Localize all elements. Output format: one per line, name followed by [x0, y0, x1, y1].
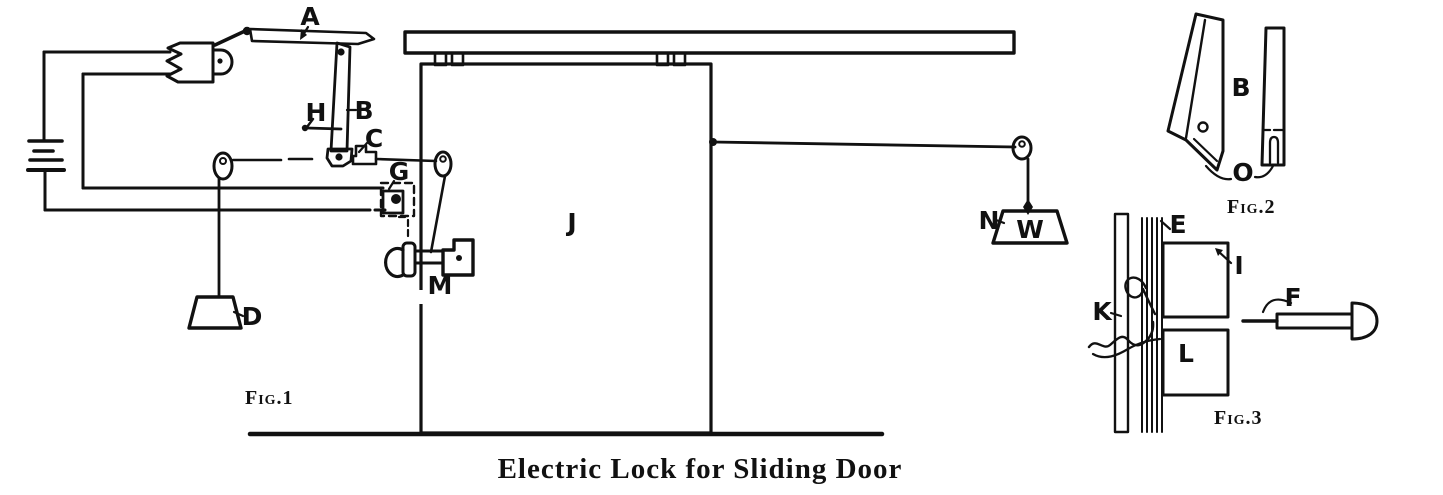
wall-section [1115, 214, 1128, 432]
lever-B [331, 43, 350, 151]
patent-diagram-page: A H B C G J M D N W Fig.1 B O Fig.2 [0, 0, 1443, 495]
battery [28, 52, 64, 210]
lever-top-pivot [337, 48, 344, 55]
bolt-f-shaft [1277, 314, 1352, 328]
fig1-caption: Fig.1 [245, 387, 294, 409]
bolt-block-pin [456, 255, 462, 261]
contact-point [391, 194, 401, 204]
label-F: F [1284, 283, 1301, 312]
pulley-right-axle [1019, 141, 1025, 147]
door-edge-gap [418, 290, 425, 304]
electromagnet [167, 27, 251, 82]
bolt-shaft [415, 251, 443, 263]
label-K: K [1092, 297, 1113, 326]
label-H: H [306, 98, 327, 127]
pulley-left-axle [220, 158, 226, 164]
label-E: E [1169, 210, 1186, 239]
fig1-group: A H B C G J M D N W Fig.1 [28, 2, 1067, 434]
label-G: G [389, 157, 410, 186]
fig3-caption: Fig.3 [1214, 407, 1263, 429]
lever-foot-pivot [335, 153, 342, 160]
wedge-catch-B [1168, 14, 1223, 170]
strike-bar-slot [1270, 137, 1278, 163]
label-B2: B [1231, 73, 1250, 102]
armature-pin [217, 58, 222, 63]
keeper-block-L [1163, 330, 1228, 395]
bolt-flange [403, 243, 415, 276]
label-D: D [242, 302, 263, 331]
track-rail [405, 32, 1014, 53]
label-M: M [428, 271, 453, 300]
strike-bar [1262, 28, 1284, 165]
armature-link [215, 31, 245, 45]
pulley-door-axle [440, 156, 446, 162]
cord-to-bolt [431, 176, 445, 252]
pulley-left [214, 153, 232, 179]
bolt-f-head [1352, 303, 1377, 339]
fig3-group: E I K F L Fig.3 [1089, 210, 1377, 432]
fig2-caption: Fig.2 [1227, 196, 1276, 218]
bolt-ring-handle [386, 249, 403, 277]
trip-bar-shape [250, 29, 374, 44]
pin-H [307, 128, 341, 129]
fig2-group: B O Fig.2 [1168, 14, 1284, 218]
door-rope [709, 137, 1067, 243]
label-J: J [565, 208, 576, 237]
magnet-armature-keeper [214, 50, 232, 74]
page-title: Electric Lock for Sliding Door [498, 453, 903, 485]
label-C: C [365, 124, 383, 153]
lock-bolt-F [1243, 300, 1377, 339]
flexible-wire-upper [1125, 278, 1155, 314]
label-o-arc-right [1255, 166, 1273, 177]
label-k-leader [1111, 313, 1121, 316]
label-A: A [300, 2, 320, 31]
rope-horizontal [713, 142, 1015, 147]
label-N: N [979, 206, 1000, 235]
label-L: L [1178, 339, 1194, 368]
wedge-hole [1199, 123, 1208, 132]
label-W: W [1016, 215, 1044, 244]
sliding-door [421, 64, 711, 433]
label-B: B [354, 96, 373, 125]
flexible-wire-tail [1093, 339, 1160, 357]
diagram-svg: A H B C G J M D N W Fig.1 B O Fig.2 [0, 0, 1443, 495]
magnet-coil-body [167, 43, 213, 82]
latch-cord [189, 152, 451, 328]
label-I: I [1234, 251, 1243, 280]
label-O: O [1232, 158, 1253, 187]
